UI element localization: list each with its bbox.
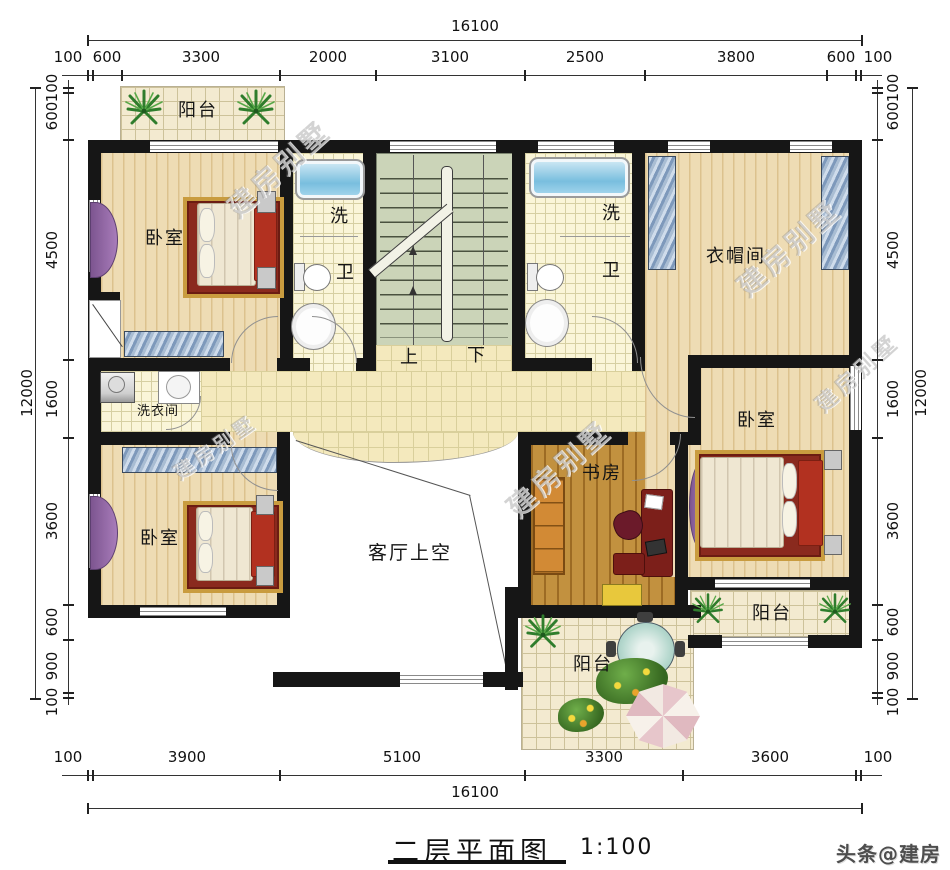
dim-label: 900 bbox=[884, 652, 902, 681]
dimension-tick bbox=[30, 87, 41, 89]
dim-label: 100 bbox=[54, 748, 83, 766]
dim-label: 900 bbox=[43, 652, 61, 681]
window bbox=[668, 141, 710, 152]
stair-guide-line bbox=[483, 155, 484, 345]
pillow bbox=[782, 501, 797, 537]
dim-label: 3800 bbox=[717, 48, 755, 66]
dim-label: 16100 bbox=[451, 783, 499, 801]
pillow bbox=[199, 208, 215, 242]
dimension-line bbox=[877, 80, 878, 705]
dimension-tick bbox=[63, 604, 74, 606]
dim-label: 600 bbox=[827, 48, 856, 66]
dimension-tick bbox=[872, 639, 883, 641]
dimension-tick bbox=[63, 87, 74, 89]
plant-icon bbox=[818, 592, 852, 626]
window bbox=[538, 141, 614, 152]
dimension-tick bbox=[872, 92, 883, 94]
dimension-tick bbox=[279, 770, 281, 781]
dim-label: 600 bbox=[884, 608, 902, 637]
dim-label: 600 bbox=[43, 102, 61, 131]
dim-label: 16100 bbox=[451, 17, 499, 35]
nightstand bbox=[824, 535, 842, 555]
dimension-tick bbox=[872, 604, 883, 606]
wall bbox=[273, 672, 400, 687]
dim-label: 100 bbox=[884, 74, 902, 103]
bed-headboard bbox=[798, 460, 823, 546]
dimension-tick bbox=[63, 692, 74, 694]
wall bbox=[632, 153, 645, 358]
bath2-wash-label: 洗 bbox=[602, 205, 622, 223]
wall bbox=[675, 445, 688, 617]
dim-label: 3600 bbox=[751, 748, 789, 766]
dimension-line bbox=[68, 80, 69, 705]
dim-label: 12000 bbox=[18, 369, 36, 417]
window bbox=[400, 675, 483, 684]
bedroom-label: 卧室 bbox=[140, 530, 180, 548]
dim-label: 12000 bbox=[912, 369, 930, 417]
dimension-tick bbox=[872, 692, 883, 694]
dimension-tick bbox=[872, 359, 883, 361]
dimension-tick bbox=[524, 770, 526, 781]
dimension-tick bbox=[860, 70, 862, 81]
dimension-tick bbox=[63, 359, 74, 361]
stair-divider bbox=[441, 166, 453, 342]
washing-machine-door bbox=[108, 376, 125, 393]
floor-plan-sheet: 上 下 洗 卫 洗 卫 衣帽间 洗衣间 卧室 卧室 bbox=[0, 0, 950, 870]
window bbox=[722, 637, 808, 646]
footer-watermark: 头条@建房别墅 bbox=[836, 838, 950, 870]
stair-forecourt-floor bbox=[376, 345, 512, 371]
dim-label: 3100 bbox=[431, 48, 469, 66]
plant-icon bbox=[691, 592, 725, 626]
dimension-tick bbox=[63, 92, 74, 94]
window bbox=[790, 141, 832, 152]
stair-down-label: 下 bbox=[467, 347, 487, 365]
dimension-tick bbox=[63, 437, 74, 439]
living-void-label: 客厅上空 bbox=[368, 544, 452, 563]
dim-label: 100 bbox=[884, 688, 902, 717]
bedroom-label: 卧室 bbox=[145, 230, 185, 248]
pillow bbox=[198, 543, 213, 573]
bath2-wc-label: 卫 bbox=[602, 262, 622, 280]
balcony-label: 阳台 bbox=[573, 656, 613, 674]
bath1-wash-label: 洗 bbox=[330, 208, 350, 226]
desk-papers bbox=[644, 494, 664, 510]
dim-label: 4500 bbox=[884, 231, 902, 269]
dimension-tick bbox=[644, 70, 646, 81]
dimension-tick bbox=[63, 639, 74, 641]
dim-label: 100 bbox=[43, 74, 61, 103]
dimension-tick bbox=[907, 698, 918, 700]
plant-icon bbox=[524, 613, 562, 651]
dimension-tick bbox=[87, 70, 89, 81]
toilet bbox=[303, 264, 331, 291]
dim-label: 3300 bbox=[585, 748, 623, 766]
dimension-tick bbox=[872, 697, 883, 699]
bath-partition bbox=[560, 236, 630, 237]
wardrobe bbox=[124, 331, 224, 357]
drawing-scale: 1:100 bbox=[580, 835, 653, 860]
bathtub bbox=[529, 157, 630, 198]
balcony-label: 阳台 bbox=[752, 605, 792, 623]
dim-label: 3300 bbox=[182, 48, 220, 66]
bedroom-label: 卧室 bbox=[737, 412, 777, 430]
storage-box bbox=[602, 584, 642, 606]
dimension-tick bbox=[872, 139, 883, 141]
window bbox=[715, 579, 810, 588]
dim-label: 100 bbox=[43, 688, 61, 717]
nightstand bbox=[257, 267, 276, 289]
plant-icon bbox=[236, 88, 276, 128]
wall bbox=[88, 292, 120, 300]
nightstand bbox=[256, 566, 274, 586]
wall bbox=[277, 358, 310, 371]
nightstand bbox=[256, 495, 274, 515]
dimension-tick bbox=[279, 70, 281, 81]
dim-label: 4500 bbox=[43, 231, 61, 269]
wall bbox=[483, 672, 523, 687]
dim-label: 5100 bbox=[383, 748, 421, 766]
dim-label: 100 bbox=[864, 748, 893, 766]
stair-direction-arrow bbox=[409, 246, 417, 255]
bed bbox=[700, 457, 784, 548]
dim-label: 3900 bbox=[168, 748, 206, 766]
dimension-tick bbox=[682, 770, 684, 781]
balcony-label: 阳台 bbox=[178, 102, 218, 120]
dimension-tick bbox=[872, 87, 883, 89]
bath-partition bbox=[300, 236, 358, 237]
dimension-line bbox=[88, 40, 862, 41]
wardrobe bbox=[648, 156, 676, 270]
dim-label: 1600 bbox=[884, 380, 902, 418]
pillow bbox=[199, 244, 215, 278]
plant-icon bbox=[124, 88, 164, 128]
pillow bbox=[198, 511, 213, 541]
garden-chair bbox=[637, 612, 653, 622]
dim-label: 3600 bbox=[884, 502, 902, 540]
garden-chair bbox=[675, 641, 685, 657]
dim-label: 2500 bbox=[566, 48, 604, 66]
dimension-tick bbox=[861, 803, 863, 814]
wash-basin bbox=[525, 299, 569, 347]
wall bbox=[688, 635, 722, 648]
dim-label: 600 bbox=[884, 102, 902, 131]
dimension-line bbox=[62, 775, 882, 776]
dimension-tick bbox=[92, 70, 94, 81]
dimension-tick bbox=[855, 770, 857, 781]
desk-return bbox=[613, 553, 645, 575]
wall bbox=[525, 358, 592, 371]
dim-label: 2000 bbox=[309, 48, 347, 66]
stair-direction-arrow bbox=[409, 286, 417, 295]
window bbox=[140, 607, 226, 616]
dim-label: 3600 bbox=[43, 502, 61, 540]
wall-niche bbox=[89, 300, 121, 358]
dimension-tick bbox=[860, 770, 862, 781]
dimension-tick bbox=[907, 87, 918, 89]
dim-label: 100 bbox=[864, 48, 893, 66]
wall bbox=[808, 635, 862, 648]
toilet bbox=[536, 264, 564, 291]
dimension-tick bbox=[92, 770, 94, 781]
dimension-tick bbox=[375, 70, 377, 81]
window bbox=[150, 141, 278, 152]
stair-up-label: 上 bbox=[400, 349, 420, 367]
dimension-tick bbox=[87, 803, 89, 814]
dimension-tick bbox=[861, 35, 863, 46]
dimension-tick bbox=[826, 70, 828, 81]
dimension-tick bbox=[63, 139, 74, 141]
title-underline bbox=[388, 860, 566, 864]
nightstand bbox=[824, 450, 842, 470]
dimension-tick bbox=[63, 697, 74, 699]
dimension-line bbox=[62, 75, 882, 76]
dim-label: 1600 bbox=[43, 380, 61, 418]
bath1-wc-label: 卫 bbox=[336, 264, 356, 282]
dimension-tick bbox=[87, 770, 89, 781]
dim-label: 600 bbox=[93, 48, 122, 66]
dim-label: 100 bbox=[54, 48, 83, 66]
dimension-tick bbox=[30, 698, 41, 700]
wall bbox=[512, 153, 525, 371]
dimension-tick bbox=[855, 70, 857, 81]
dimension-tick bbox=[872, 437, 883, 439]
wall bbox=[356, 358, 376, 371]
pillow bbox=[782, 463, 797, 499]
dim-label: 600 bbox=[43, 608, 61, 637]
dimension-tick bbox=[121, 70, 123, 81]
window bbox=[390, 141, 496, 152]
dimension-line bbox=[88, 808, 862, 809]
dimension-tick bbox=[524, 70, 526, 81]
dimension-tick bbox=[87, 35, 89, 46]
